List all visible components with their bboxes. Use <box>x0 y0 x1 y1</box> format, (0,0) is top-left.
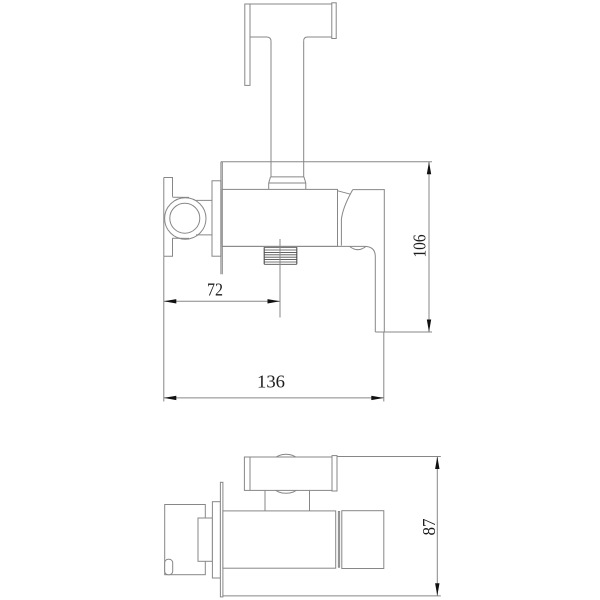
svg-text:72: 72 <box>207 280 223 300</box>
svg-text:136: 136 <box>257 371 285 391</box>
svg-text:87: 87 <box>419 519 439 536</box>
svg-text:106: 106 <box>410 235 430 258</box>
